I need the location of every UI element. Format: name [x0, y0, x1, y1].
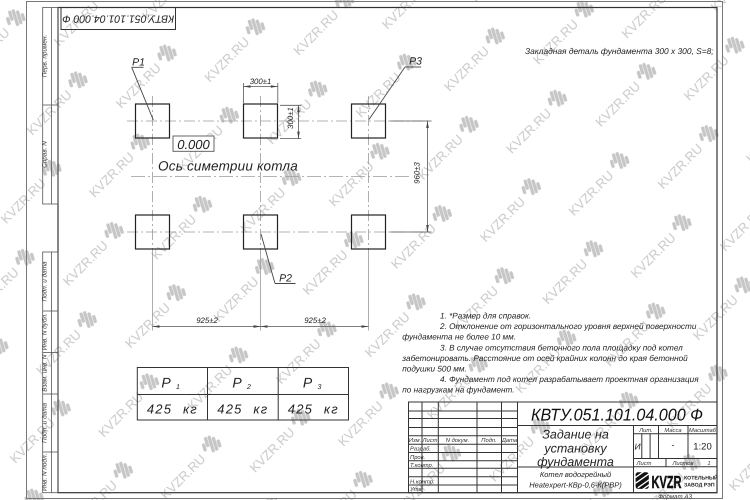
svg-text:подушки 500 мм.: подушки 500 мм. — [402, 365, 467, 374]
svg-text:Масштаб: Масштаб — [689, 427, 717, 434]
svg-text:Heatexpert-КВр-0,6-К(РВР): Heatexpert-КВр-0,6-К(РВР) — [529, 481, 622, 490]
svg-text:КВТУ.051.101.04.000 Ф: КВТУ.051.101.04.000 Ф — [531, 406, 703, 425]
svg-text:925±2: 925±2 — [196, 316, 218, 325]
svg-text:300±1: 300±1 — [286, 107, 295, 129]
svg-text:Р: Р — [232, 375, 242, 391]
svg-text:КВТУ.051.101.04.000 Ф: КВТУ.051.101.04.000 Ф — [62, 13, 174, 25]
svg-text:Р1: Р1 — [132, 57, 145, 69]
svg-text:ЗАВОД РЭП: ЗАВОД РЭП — [684, 483, 715, 489]
svg-text:-: - — [672, 440, 675, 450]
svg-text:Р: Р — [161, 375, 171, 391]
svg-text:KVZR: KVZR — [652, 472, 682, 492]
svg-text:1: 1 — [176, 384, 180, 391]
svg-text:Н.контр.: Н.контр. — [410, 479, 435, 485]
svg-text:И: И — [635, 442, 642, 452]
svg-text:300±1: 300±1 — [250, 77, 272, 86]
svg-text:425 кг: 425 кг — [147, 402, 198, 417]
svg-text:Подп. и дата: Подп. и дата — [42, 403, 49, 443]
svg-text:Справ. N: Справ. N — [42, 141, 49, 168]
svg-text:Р: Р — [303, 375, 313, 391]
svg-text:Ось симетрии котла: Ось симетрии котла — [158, 158, 298, 173]
svg-text:Утв.: Утв. — [409, 487, 423, 493]
svg-text:Р3: Р3 — [409, 56, 422, 68]
svg-text:N докум.: N докум. — [446, 437, 469, 444]
svg-text:1. *Размер для справок.: 1. *Размер для справок. — [440, 312, 531, 321]
svg-text:по нагрузкам на фундамент.: по нагрузкам на фундамент. — [402, 386, 514, 395]
svg-text:фундамента: фундамента — [537, 455, 614, 469]
svg-text:Закладная деталь фундамента 3: Закладная деталь фундамента 300 х 300, S… — [525, 46, 714, 56]
svg-text:Подп.: Подп. — [481, 437, 496, 444]
svg-text:Лит.: Лит. — [638, 428, 653, 434]
svg-text:2. Отклонение от горизонтальн: 2. Отклонение от горизонтального уровня … — [439, 322, 697, 331]
svg-text:Инв. N подл.: Инв. N подл. — [42, 454, 49, 491]
svg-text:3. В случае отсутствия бетонн: 3. В случае отсутствия бетонного пола пл… — [440, 343, 683, 352]
svg-text:Формат А3: Формат А3 — [658, 494, 692, 500]
svg-text:Дата: Дата — [501, 438, 518, 444]
svg-text:Разраб.: Разраб. — [410, 446, 431, 453]
svg-text:забетонировать. Расстояние от: забетонировать. Расстояние от осей крайн… — [401, 354, 688, 363]
svg-text:960±3: 960±3 — [413, 162, 422, 184]
svg-text:Лист: Лист — [636, 461, 652, 467]
svg-text:2: 2 — [246, 384, 251, 391]
svg-text:Подп. и дата: Подп. и дата — [42, 261, 49, 301]
svg-text:Изм.: Изм. — [409, 438, 421, 444]
svg-text:425 кг: 425 кг — [288, 402, 339, 417]
svg-text:1:20: 1:20 — [693, 442, 712, 453]
svg-text:Листов: Листов — [671, 461, 693, 467]
svg-text:425 кг: 425 кг — [217, 402, 268, 417]
svg-text:Задание на: Задание на — [542, 428, 609, 442]
svg-text:Т.контр.: Т.контр. — [410, 463, 433, 469]
svg-text:3: 3 — [318, 384, 322, 391]
svg-text:Лист: Лист — [422, 438, 438, 444]
svg-text:1: 1 — [707, 461, 710, 467]
svg-text:Инв. N дубл.: Инв. N дубл. — [42, 313, 49, 350]
svg-text:925±2: 925±2 — [304, 316, 326, 325]
svg-text:4. Фундамент под котел разраб: 4. Фундамент под котел разрабатывает про… — [440, 375, 699, 384]
svg-text:КОТЕЛЬНЫЙ: КОТЕЛЬНЫЙ — [684, 475, 718, 482]
svg-text:Пров.: Пров. — [410, 455, 425, 461]
svg-text:установку: установку — [543, 442, 607, 456]
svg-text:фундамента не более 10 мм.: фундамента не более 10 мм. — [402, 333, 516, 342]
svg-text:Р2: Р2 — [279, 273, 292, 285]
svg-text:Перв. примен.: Перв. примен. — [42, 35, 49, 77]
svg-text:Котел водогрейный: Котел водогрейный — [540, 470, 612, 479]
svg-text:Масса: Масса — [664, 428, 682, 434]
svg-text:0.000: 0.000 — [177, 137, 210, 152]
svg-text:Взам. инв. N: Взам. инв. N — [42, 354, 49, 392]
